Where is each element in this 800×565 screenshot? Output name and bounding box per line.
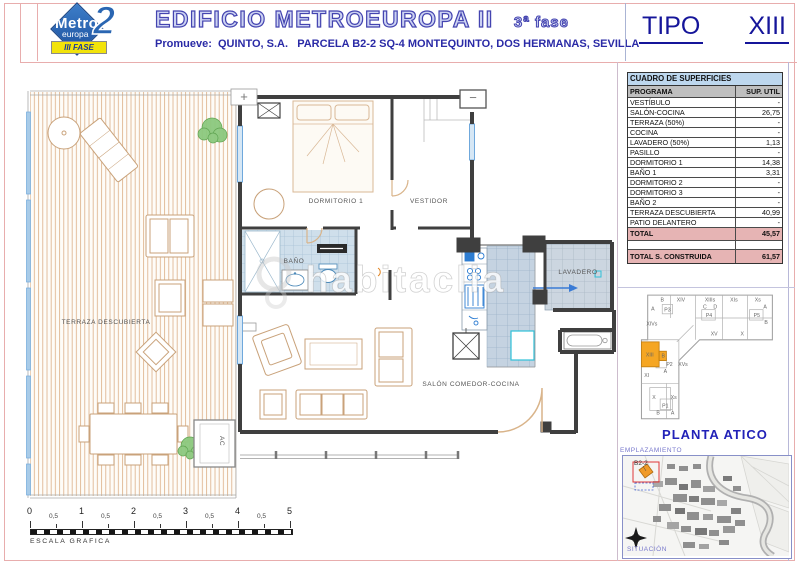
- minus-symbol: −: [460, 90, 486, 108]
- phase-label: 3ª fase: [514, 14, 569, 31]
- plan-sheet: 2 Metro europa III FASE EDIFICIO METROEU…: [0, 0, 800, 565]
- armchair: [252, 324, 302, 376]
- unit-label: Xs: [671, 395, 677, 401]
- sidebar-divider: [617, 62, 618, 561]
- unit-label: XIV: [677, 297, 686, 303]
- window: [470, 124, 475, 160]
- terrace-door-leaf: [241, 323, 256, 331]
- parcel-label: B2-2: [634, 460, 648, 467]
- table-row: BAÑO 13,31: [628, 168, 782, 178]
- living-furniture: [241, 323, 412, 419]
- unit-label: XV: [711, 332, 718, 338]
- svg-text:−: −: [469, 90, 477, 105]
- title-block: 2 Metro europa III FASE EDIFICIO METROEU…: [20, 3, 797, 63]
- surface-table-header: PROGRAMA SUP. UTIL: [628, 86, 782, 98]
- unit-label: B: [656, 411, 660, 417]
- tipo-value: XIII: [745, 12, 789, 44]
- header-strip-divider: [37, 3, 38, 61]
- empty-row: [628, 241, 782, 250]
- unit-label: B: [662, 353, 666, 359]
- table-row: BAÑO 2-: [628, 198, 782, 208]
- bedroom-armchair: [254, 189, 284, 219]
- dressing-label: VESTIDOR: [410, 198, 448, 205]
- fridge: [453, 328, 479, 359]
- unit-label: A: [763, 305, 767, 311]
- unit-label: A: [651, 307, 655, 313]
- terrace-railing: [27, 112, 31, 495]
- living-label: SALÓN COMEDOR-COCINA: [422, 379, 519, 388]
- unit-label: P4: [706, 313, 712, 319]
- unit-label: A: [671, 411, 675, 417]
- promoter-line: Promueve: QUINTO, S.A. PARCELA B2-2 SQ-4…: [155, 38, 639, 50]
- table-row: SALÓN-COCINA26,75: [628, 108, 782, 118]
- unit-label: B: [661, 297, 665, 303]
- table-row: TERRAZA DESCUBIERTA40,99: [628, 208, 782, 218]
- dressing-door: [392, 180, 408, 196]
- sidebar-section-divider: [618, 287, 795, 288]
- ac-label: AC: [218, 436, 225, 446]
- laundry-label: LAVADERO: [558, 269, 597, 276]
- unit-label: A: [664, 369, 668, 375]
- key-plan: BXIVXIIIsXIsXsAP3XIVsCDP4XVAP5BXXIIIBP2X…: [631, 292, 787, 425]
- ac-unit: AC: [194, 420, 235, 467]
- unit-label: B: [764, 320, 768, 326]
- tipo-label: TIPO: [639, 12, 703, 44]
- unit-label: XIVs: [646, 321, 657, 327]
- unit-label: P2: [666, 362, 672, 368]
- logo-phase-badge: III FASE: [51, 41, 107, 54]
- unit-label: XIII: [646, 352, 654, 358]
- scale-major-tick: 4: [235, 506, 240, 516]
- kitchen-cabinet: [511, 331, 534, 360]
- table-row: TERRAZA (50%)-: [628, 118, 782, 128]
- neighbour-bathtub: [564, 332, 611, 349]
- table-row: VESTÍBULO-: [628, 98, 782, 108]
- window: [238, 126, 243, 182]
- surface-table: CUADRO DE SUPERFICIES PROGRAMA SUP. UTIL…: [627, 72, 783, 264]
- key-plan-caption: PLANTA ATICO: [640, 427, 790, 442]
- bed: [293, 101, 373, 192]
- nightstand: [258, 103, 280, 118]
- column-program: PROGRAMA: [628, 86, 735, 97]
- tipo-cell: TIPO XIII: [625, 3, 797, 62]
- scale-major-tick: 5: [287, 506, 292, 516]
- unit-label: P3: [664, 308, 670, 314]
- unit-label: P5: [754, 313, 760, 319]
- page-title: EDIFICIO METROEUROPA II: [155, 6, 494, 33]
- map-caption: SITUACIÓN: [627, 546, 667, 553]
- table-row: PATIO DELANTERO-: [628, 218, 782, 228]
- title-cell: EDIFICIO METROEUROPA II 3ª fase Promueve…: [139, 5, 625, 61]
- table-row: DORMITORIO 3-: [628, 188, 782, 198]
- neighbour-boundary: [240, 451, 458, 459]
- surface-table-title: CUADRO DE SUPERFICIES: [628, 73, 782, 86]
- logo-subname: europa: [62, 29, 88, 39]
- surface-table-body: VESTÍBULO-SALÓN-COCINA26,75TERRAZA (50%)…: [628, 98, 782, 228]
- unit-label: XIIIs: [705, 297, 716, 303]
- location-title: EMPLAZAMIENTO: [620, 447, 682, 454]
- terrace-label: TERRAZA DESCUBIERTA: [62, 319, 151, 326]
- svg-text:habitaclia: habitaclia: [306, 259, 507, 300]
- scale-minor-tick: 0,5: [101, 513, 110, 520]
- dining-table: [90, 414, 177, 454]
- location-map: B2-2: [623, 456, 789, 556]
- unit-label: P1: [662, 403, 668, 409]
- unit-label: X: [652, 395, 656, 401]
- bedroom-label: DORMITORIO 1: [309, 198, 364, 205]
- terrace-door-glass: [238, 316, 243, 364]
- scale-major-tick: 3: [183, 506, 188, 516]
- table-row: COCINA-: [628, 128, 782, 138]
- scale-bar-dashes: [30, 529, 293, 535]
- unit-label: D: [713, 305, 717, 311]
- developer-logo: 2 Metro europa III FASE: [41, 5, 139, 60]
- total-built-row: TOTAL S. CONSTRUIDA 61,57: [628, 250, 782, 263]
- bathroom-label: BAÑO: [284, 256, 305, 265]
- svg-text:+: +: [240, 89, 248, 104]
- unit-label: XIs: [730, 297, 738, 303]
- table-row: DORMITORIO 114,38: [628, 158, 782, 168]
- location-map-box: B2-2: [622, 455, 792, 559]
- scale-major-tick: 0: [27, 506, 32, 516]
- scale-minor-tick: 0,5: [257, 513, 266, 520]
- unit-label: C: [703, 305, 707, 311]
- unit-label: XVs: [678, 362, 688, 368]
- unit-label: X: [741, 332, 745, 338]
- table-row: LAVADERO (50%)1,13: [628, 138, 782, 148]
- column-area: SUP. UTIL: [735, 86, 782, 97]
- plus-symbol: +: [231, 89, 257, 105]
- scale-major-tick: 1: [79, 506, 84, 516]
- scale-bar-label: ESCALA GRAFICA: [30, 538, 111, 545]
- unit-label: XI: [644, 373, 649, 379]
- total-row: TOTAL 45,57: [628, 228, 782, 241]
- terrace-seat: [203, 280, 233, 302]
- unit-label: Xs: [755, 297, 761, 303]
- entry-door: [498, 388, 542, 432]
- scale-minor-tick: 0,5: [49, 513, 58, 520]
- table-row: PASILLO-: [628, 148, 782, 158]
- scale-bar: 00,510,520,530,540,55 ESCALA GRAFICA: [30, 506, 305, 554]
- floor-plan-drawing: AC: [24, 84, 616, 506]
- scale-major-tick: 2: [131, 506, 136, 516]
- scale-minor-tick: 0,5: [205, 513, 214, 520]
- table-row: DORMITORIO 2-: [628, 178, 782, 188]
- scale-minor-tick: 0,5: [153, 513, 162, 520]
